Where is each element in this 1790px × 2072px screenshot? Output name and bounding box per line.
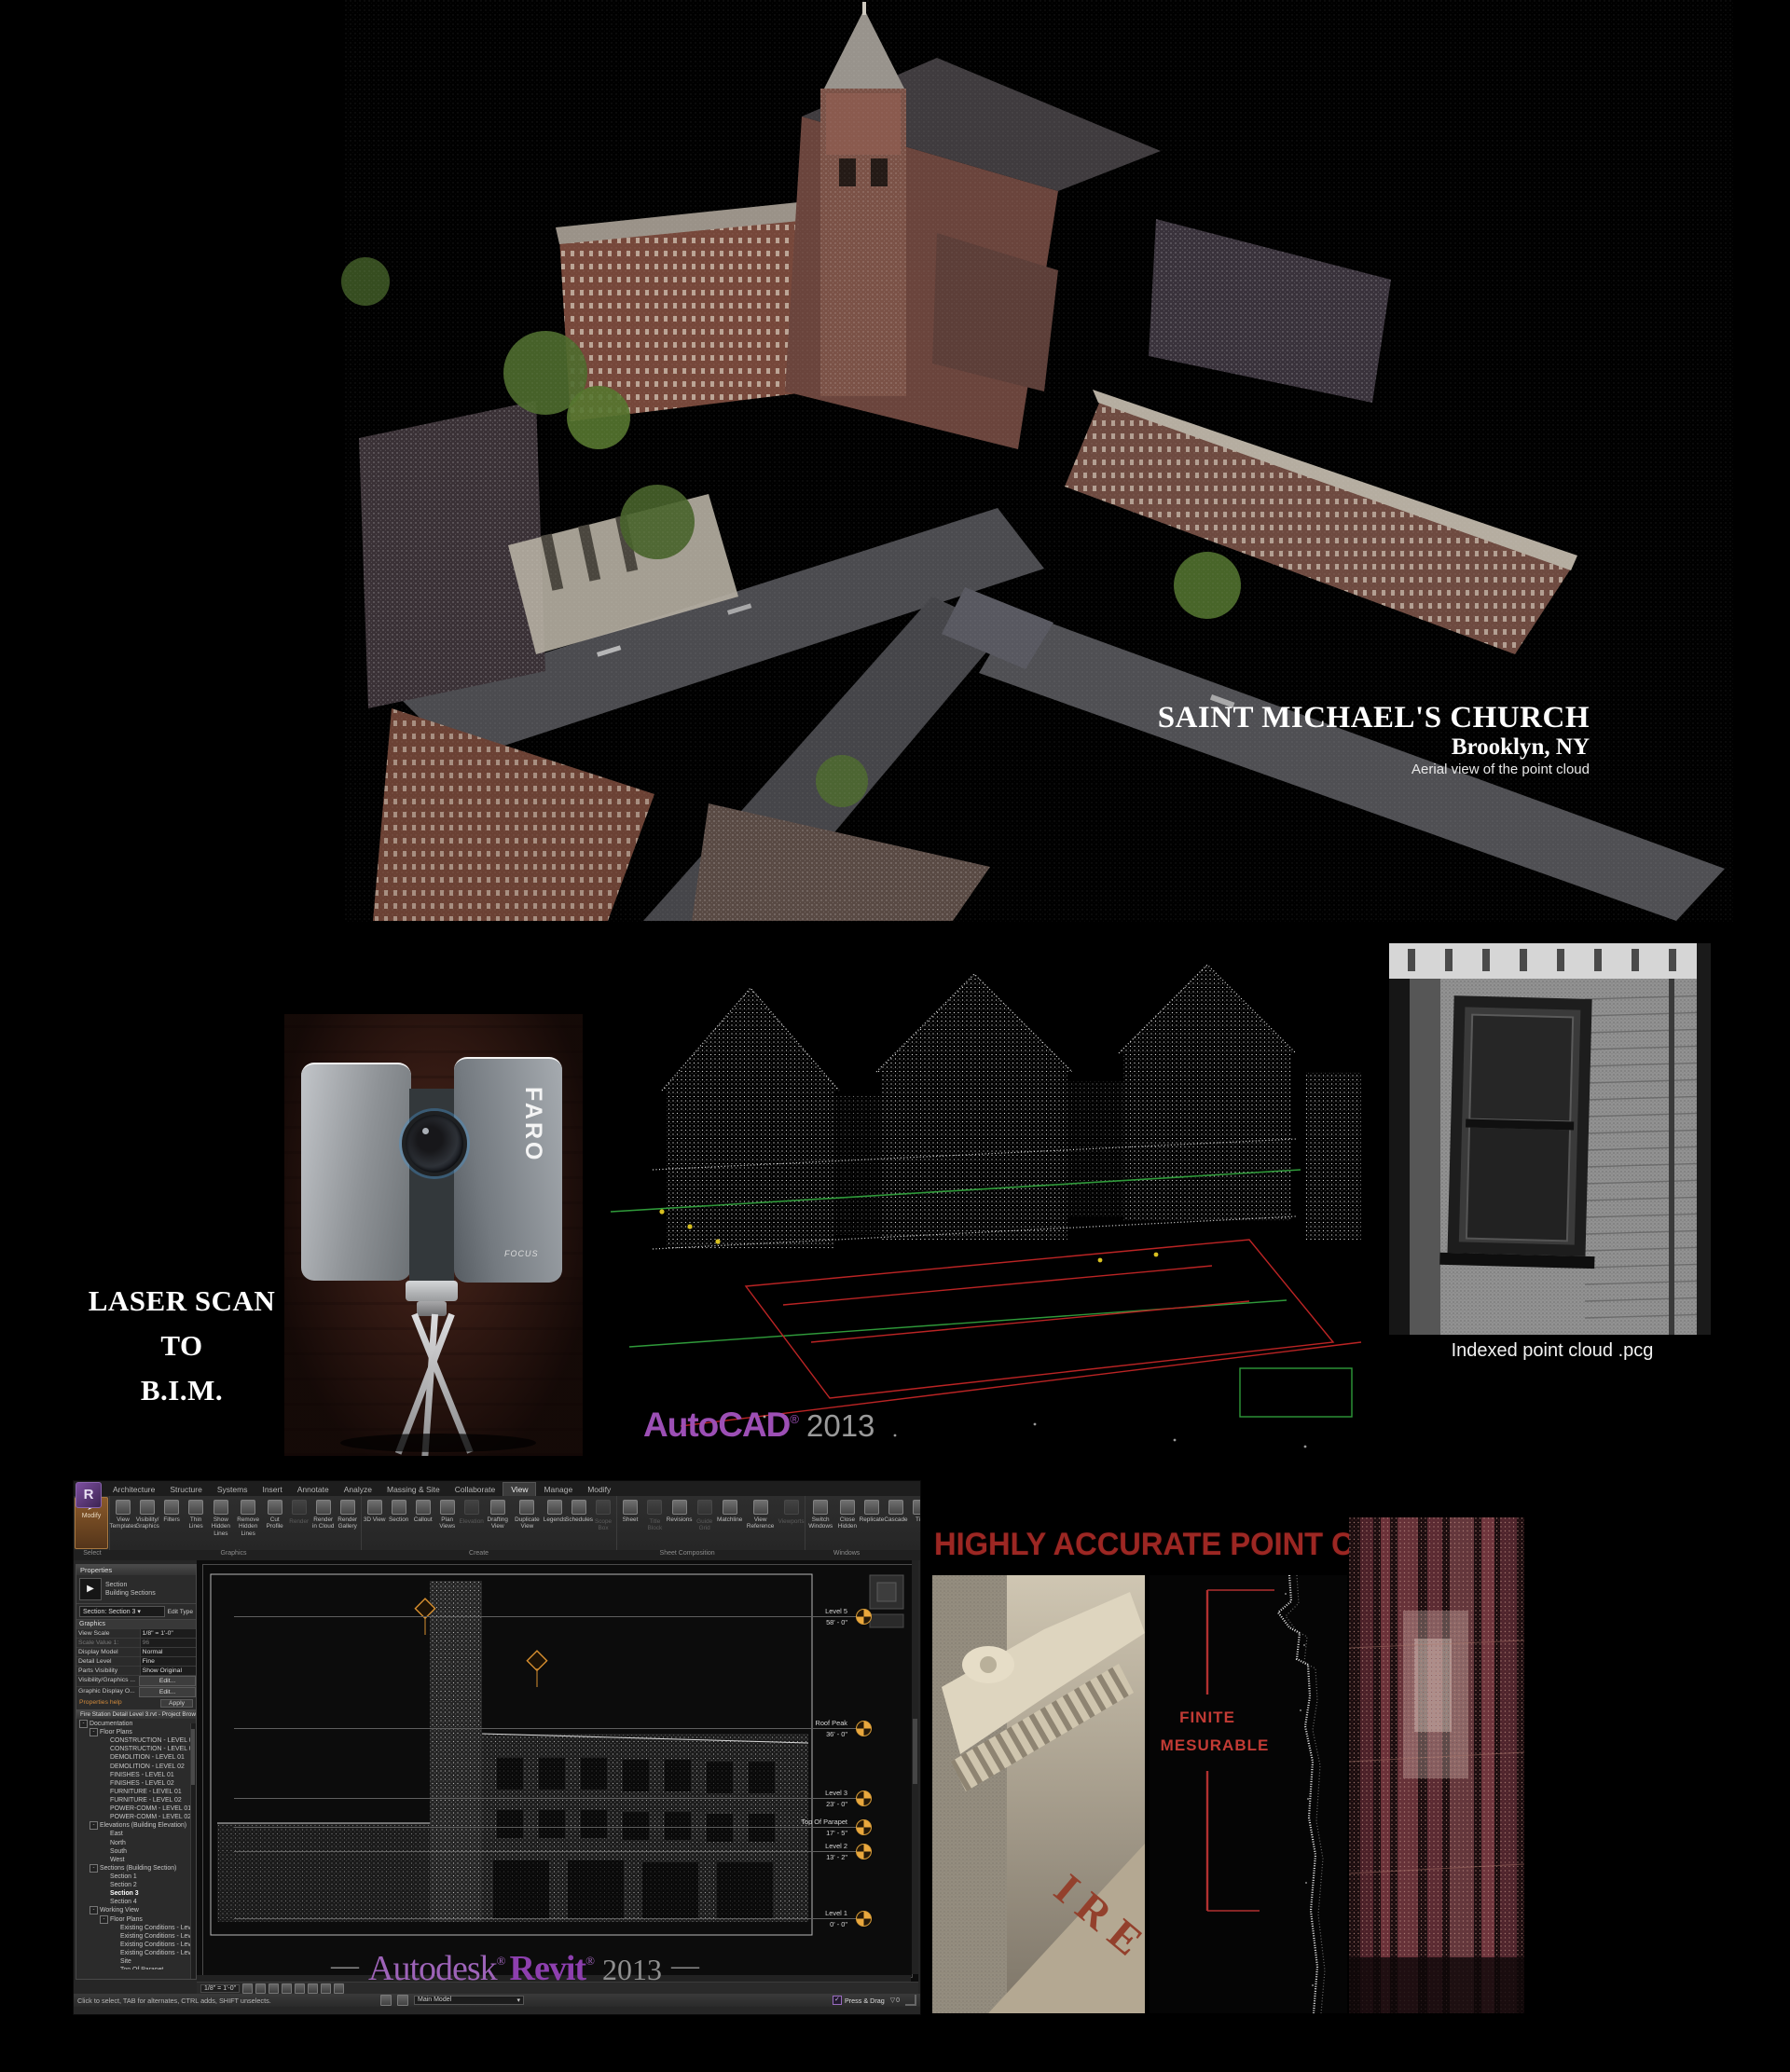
ribbon-button-icon	[464, 1500, 479, 1515]
ribbon-button-icon	[268, 1500, 282, 1515]
design-options-icon[interactable]	[397, 1995, 408, 2006]
ribbon-button-icon	[367, 1500, 382, 1515]
ribbon-tab[interactable]: Insert	[255, 1483, 289, 1496]
level-head-icon	[856, 1911, 872, 1927]
browser-item[interactable]: North	[76, 1839, 196, 1847]
ribbon-button[interactable]: Render in Cloud	[311, 1497, 336, 1549]
type-dropdown[interactable]: Section: Section 3 ▾	[79, 1606, 165, 1617]
expander-icon[interactable]: -	[89, 1864, 98, 1873]
ribbon-button-icon	[813, 1500, 828, 1515]
ribbon-button-icon	[784, 1500, 799, 1515]
browser-item[interactable]: FURNITURE - LEVEL 02	[76, 1796, 196, 1804]
browser-item[interactable]: Section 2	[76, 1881, 196, 1889]
browser-item[interactable]: Existing Conditions - Level 3	[76, 1941, 196, 1949]
ribbon-group-graphics: View TemplatesVisibility/ GraphicsFilter…	[110, 1496, 362, 1550]
nav-cube-icon	[870, 1575, 903, 1627]
ribbon-button-icon	[116, 1500, 131, 1515]
browser-item[interactable]: West	[76, 1856, 196, 1864]
main-model-select[interactable]: Main Model▾	[414, 1996, 524, 2005]
page-title: SAINT MICHAEL'S CHURCH	[1158, 701, 1590, 734]
browser-item[interactable]: South	[76, 1847, 196, 1856]
scanner-model-label: FOCUS	[504, 1249, 539, 1258]
browser-item[interactable]: Section 3	[76, 1889, 196, 1898]
scanner-brand-label: FARO	[519, 1087, 546, 1162]
revit-brand: —Autodesk® Revit®2013—	[322, 1948, 709, 1989]
ribbon-button[interactable]: Replicate	[860, 1497, 884, 1549]
revit-app-icon[interactable]: R	[76, 1482, 102, 1508]
properties-rows: View Scale1/8" = 1'-0" Scale Value 1:96 …	[76, 1628, 196, 1697]
ribbon-button-icon	[164, 1500, 179, 1515]
property-row[interactable]: Display ModelNormal	[76, 1647, 196, 1656]
browser-item[interactable]: -Floor Plans	[76, 1915, 196, 1924]
ribbon-button-icon	[392, 1500, 406, 1515]
hero-caption-text: Aerial view of the point cloud	[1158, 762, 1590, 778]
ribbon-tab-bar: ArchitectureStructureSystemsInsertAnnota…	[74, 1481, 920, 1496]
scanner-lens-icon	[402, 1111, 467, 1176]
level-head-icon	[856, 1791, 872, 1806]
graphics-group-header[interactable]: Graphics	[76, 1619, 196, 1628]
ribbon-button[interactable]: 3D View	[363, 1497, 387, 1549]
ribbon-button[interactable]: Cut Profile	[263, 1497, 287, 1549]
ribbon-button[interactable]: Remove Hidden Lines	[234, 1497, 263, 1549]
ribbon-button-icon	[723, 1500, 737, 1515]
browser-item[interactable]: FURNITURE - LEVEL 01	[76, 1788, 196, 1796]
autocad-brand: AutoCAD®2013	[643, 1406, 874, 1445]
ribbon-group-sheet-composition: SheetTitle BlockRevisionsGuide GridMatch…	[617, 1496, 805, 1550]
ribbon-tab[interactable]: Annotate	[290, 1483, 337, 1496]
status-bar: Click to select, TAB for alternates, CTR…	[74, 1994, 920, 2007]
ribbon-button[interactable]: Guide Grid	[692, 1497, 718, 1549]
browser-item[interactable]: Section 4	[76, 1898, 196, 1906]
section-type-icon: ▶	[79, 1578, 102, 1600]
red-pointcloud-strip	[1349, 1517, 1524, 2013]
properties-header[interactable]: Properties	[76, 1565, 196, 1575]
browser-item[interactable]: -Sections (Building Section)	[76, 1864, 196, 1873]
ribbon-group-labels: Select Graphics Create Sheet Composition…	[74, 1550, 920, 1560]
canvas-vertical-scrollbar[interactable]	[912, 1560, 918, 1974]
status-hint: Click to select, TAB for alternates, CTR…	[77, 1997, 375, 2005]
filter-icon: ▽	[890, 1997, 895, 2004]
browser-item[interactable]: Top Of Parapet	[76, 1966, 196, 1969]
browser-item[interactable]: -Elevations (Building Elevation)	[76, 1821, 196, 1830]
shadows-icon[interactable]	[282, 1983, 292, 1994]
revit-window: R ArchitectureStructureSystemsInsertAnno…	[73, 1480, 921, 2015]
ribbon-button-icon	[840, 1500, 855, 1515]
browser-item[interactable]: CONSTRUCTION - LEVEL 01	[76, 1736, 196, 1745]
detail-level-icon[interactable]	[242, 1983, 253, 1994]
ribbon-button-icon	[213, 1500, 228, 1515]
group-label-select: Select	[74, 1550, 111, 1560]
browser-item[interactable]: East	[76, 1830, 196, 1838]
ribbon-button[interactable]: Callout	[411, 1497, 435, 1549]
ribbon-button[interactable]: Revisions	[668, 1497, 692, 1549]
ribbon-button-icon	[340, 1500, 355, 1515]
browser-item[interactable]: CONSTRUCTION - LEVEL 02	[76, 1745, 196, 1753]
ribbon-tab[interactable]: Structure	[162, 1483, 210, 1496]
expander-icon[interactable]: -	[89, 1906, 98, 1914]
properties-help-link[interactable]: Properties help	[79, 1699, 122, 1708]
ribbon-button[interactable]: Thin Lines	[184, 1497, 208, 1549]
browser-item[interactable]: -Floor Plans	[76, 1728, 196, 1736]
level-head-icon	[856, 1819, 872, 1835]
properties-palette: Properties ▶ SectionBuilding Sections Se…	[76, 1564, 197, 1726]
press-drag-toggle[interactable]: ✓ Press & Drag	[833, 1996, 885, 2005]
crop-view-icon[interactable]	[295, 1983, 305, 1994]
scanner-photo: FARO FOCUS	[284, 1014, 583, 1456]
property-row[interactable]: Visibility/Graphics ...Edit...	[76, 1675, 196, 1686]
type-selector[interactable]: ▶ SectionBuilding Sections	[76, 1575, 196, 1604]
ribbon-button[interactable]: Show Hidden Lines	[208, 1497, 233, 1549]
browser-scrollbar[interactable]	[190, 1723, 196, 1979]
browser-item[interactable]: -Documentation	[76, 1720, 196, 1728]
ribbon-tab[interactable]: Systems	[210, 1483, 255, 1496]
level-head-icon	[856, 1721, 872, 1736]
ribbon-button[interactable]: Drafting View	[484, 1497, 512, 1549]
ribbon-button-icon	[864, 1500, 879, 1515]
ribbon-group-windows: Switch WindowsClose HiddenReplicateCasca…	[805, 1496, 920, 1550]
profile-measure-graphic: FINITE MESURABLE	[1150, 1575, 1347, 2013]
finite-label: FINITE	[1179, 1708, 1235, 1726]
browser-item[interactable]: DEMOLITION - LEVEL 01	[76, 1753, 196, 1762]
ribbon: ➤ Modify View TemplatesVisibility/ Graph…	[74, 1496, 920, 1550]
heading-line-2: TO	[37, 1324, 326, 1368]
ribbon-button-icon	[519, 1500, 534, 1515]
ribbon-tab[interactable]: Modify	[580, 1483, 618, 1496]
group-label-windows: Windows	[773, 1550, 920, 1560]
ribbon-button-icon	[571, 1500, 586, 1515]
browser-item[interactable]: Section 1	[76, 1873, 196, 1881]
ribbon-button[interactable]: Sheet	[618, 1497, 642, 1549]
hero-caption-block: SAINT MICHAEL'S CHURCH Brooklyn, NY Aeri…	[1158, 701, 1590, 777]
ribbon-button-icon	[753, 1500, 768, 1515]
view-scale-button[interactable]: 1/8" = 1'-0"	[200, 1984, 240, 1993]
window-pointcloud-image	[1389, 943, 1711, 1335]
ribbon-button-icon	[623, 1500, 638, 1515]
ribbon-button[interactable]: Tile	[908, 1497, 920, 1549]
ribbon-button-icon	[647, 1500, 662, 1515]
property-row[interactable]: View Scale1/8" = 1'-0"	[76, 1628, 196, 1638]
ribbon-button[interactable]: Section	[387, 1497, 411, 1549]
property-row[interactable]: Detail LevelFine	[76, 1656, 196, 1666]
level-head-icon	[856, 1609, 872, 1625]
browser-item[interactable]: FINISHES - LEVEL 02	[76, 1779, 196, 1788]
ribbon-tab[interactable]: Collaborate	[447, 1483, 503, 1496]
expander-icon[interactable]: -	[89, 1821, 98, 1830]
property-row[interactable]: Scale Value 1:96	[76, 1638, 196, 1647]
browser-item[interactable]: FINISHES - LEVEL 01	[76, 1771, 196, 1779]
ribbon-button[interactable]: Title Block	[642, 1497, 668, 1549]
ribbon-button[interactable]: Filters	[159, 1497, 184, 1549]
expander-icon[interactable]: -	[79, 1720, 88, 1728]
heading-line-1: LASER SCAN	[37, 1279, 326, 1324]
browser-item[interactable]: POWER-COMM - LEVEL 01	[76, 1804, 196, 1813]
ribbon-button-icon	[188, 1500, 203, 1515]
ribbon-button[interactable]: View Reference	[742, 1497, 779, 1549]
ribbon-button[interactable]: Matchline	[718, 1497, 742, 1549]
ribbon-button[interactable]: Scope Box	[591, 1497, 615, 1549]
autodesk-logo-text: Autodesk	[368, 1949, 497, 1988]
cornice-photo: IRE	[932, 1575, 1145, 2013]
ribbon-button-icon	[697, 1500, 712, 1515]
browser-item[interactable]: POWER-COMM - LEVEL 02	[76, 1813, 196, 1821]
group-label-create: Create	[356, 1550, 601, 1560]
apply-button[interactable]: Apply	[160, 1699, 193, 1708]
browser-item[interactable]: Site	[76, 1957, 196, 1966]
edit-type-button[interactable]: Edit Type	[168, 1609, 193, 1615]
project-browser-header[interactable]: Fire Station Detail Level 3.rvt - Projec…	[76, 1710, 196, 1719]
page-subtitle: Brooklyn, NY	[1158, 734, 1590, 761]
ribbon-button[interactable]: Schedules	[567, 1497, 591, 1549]
mesurable-label: MESURABLE	[1161, 1736, 1270, 1754]
visual-style-icon[interactable]	[255, 1983, 266, 1994]
browser-item[interactable]: DEMOLITION - LEVEL 02	[76, 1763, 196, 1771]
ribbon-button[interactable]: Render Gallery	[336, 1497, 360, 1549]
ribbon-button-icon	[888, 1500, 903, 1515]
expander-icon[interactable]: -	[100, 1915, 108, 1924]
ribbon-button[interactable]: View Templates	[111, 1497, 135, 1549]
ribbon-button[interactable]: Elevation	[460, 1497, 484, 1549]
project-browser-tree: -Documentation-Floor PlansCONSTRUCTION -…	[76, 1719, 196, 1969]
ribbon-button-icon	[292, 1500, 307, 1515]
ribbon-button[interactable]: Switch Windows	[806, 1497, 835, 1549]
expander-icon[interactable]: -	[89, 1728, 98, 1736]
ribbon-group-create: 3D ViewSectionCalloutPlan ViewsElevation…	[362, 1496, 617, 1550]
browser-item[interactable]: Existing Conditions - Level 5	[76, 1949, 196, 1957]
browser-item[interactable]: -Working View	[76, 1906, 196, 1914]
press-drag-checkbox[interactable]: ✓	[833, 1996, 842, 2005]
ribbon-tab[interactable]: Manage	[536, 1483, 580, 1496]
resize-grip-icon[interactable]	[905, 1995, 916, 2006]
browser-item[interactable]: Existing Conditions - Level 1	[76, 1924, 196, 1932]
ribbon-button[interactable]: Close Hidden	[835, 1497, 860, 1549]
ribbon-button[interactable]: Legends	[543, 1497, 567, 1549]
ribbon-button[interactable]: Viewports	[779, 1497, 804, 1549]
selection-filter[interactable]: ▽0	[890, 1997, 900, 2004]
indexed-pointcloud-caption: Indexed point cloud .pcg	[1394, 1340, 1711, 1362]
project-browser: Fire Station Detail Level 3.rvt - Projec…	[76, 1709, 197, 1980]
laser-scan-heading: LASER SCAN TO B.I.M.	[37, 1279, 326, 1413]
sun-path-icon[interactable]	[268, 1983, 279, 1994]
revit-logo-text: Revit	[510, 1949, 586, 1988]
property-row[interactable]: Parts VisibilityShow Original	[76, 1666, 196, 1675]
autocad-pointcloud-image	[597, 932, 1384, 1468]
ribbon-button-icon	[490, 1500, 505, 1515]
drawing-canvas[interactable]: Level 558' - 0" Roof Peak36' - 0" Level …	[197, 1560, 918, 1982]
ribbon-tab[interactable]: Architecture	[105, 1483, 162, 1496]
ribbon-button-icon	[672, 1500, 687, 1515]
ribbon-tab[interactable]: Analyze	[337, 1483, 379, 1496]
ribbon-button-icon	[913, 1500, 920, 1515]
level-head-icon	[856, 1844, 872, 1859]
ribbon-button[interactable]: Cascade	[884, 1497, 908, 1549]
property-row[interactable]: Graphic Display O...Edit...	[76, 1686, 196, 1697]
ribbon-button-icon	[416, 1500, 431, 1515]
ribbon-button[interactable]: Render	[287, 1497, 311, 1549]
ribbon-button-icon	[316, 1500, 331, 1515]
group-label-sheet-composition: Sheet Composition	[601, 1550, 773, 1560]
worksets-icon[interactable]	[380, 1995, 392, 2006]
ribbon-button-icon	[596, 1500, 611, 1515]
ribbon-tab[interactable]: Massing & Site	[379, 1483, 447, 1496]
ribbon-button-icon	[547, 1500, 562, 1515]
group-label-graphics: Graphics	[111, 1550, 356, 1560]
ribbon-tab[interactable]: View	[503, 1482, 536, 1496]
show-crop-icon[interactable]	[308, 1983, 318, 1994]
heading-line-3: B.I.M.	[37, 1368, 326, 1413]
ribbon-button[interactable]: Visibility/ Graphics	[135, 1497, 159, 1549]
ribbon-button[interactable]: Duplicate View	[512, 1497, 543, 1549]
ribbon-button-icon	[241, 1500, 255, 1515]
ribbon-button[interactable]: Plan Views	[435, 1497, 460, 1549]
hero-pointcloud-image	[0, 0, 1790, 923]
autocad-logo-text: AutoCAD	[643, 1406, 790, 1444]
browser-item[interactable]: Existing Conditions - Level 2	[76, 1932, 196, 1941]
ribbon-button-icon	[440, 1500, 455, 1515]
scanner-body-left	[301, 1063, 411, 1281]
ribbon-button-icon	[140, 1500, 155, 1515]
